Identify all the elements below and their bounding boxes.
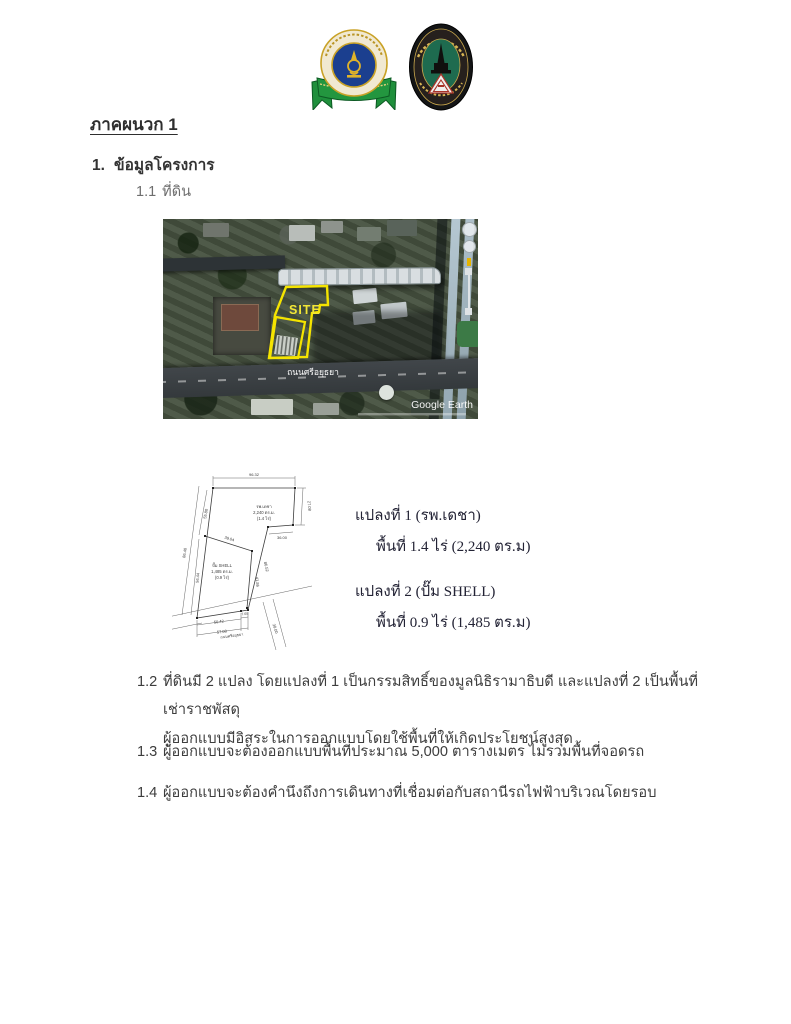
plot2-area-text: พื้นที่ 0.9 ไร่ (1,485 ตร.ม) [355,610,615,634]
satellite-map-figure: SITE ถนนศรีอยุธยา Google Earth [163,219,478,419]
dim-side-road: 38.00 [272,623,280,635]
dim-left-lower: 56.44 [194,572,200,583]
dim-right-h: 36.00 [277,535,288,540]
section-1-label: ข้อมูลโครงการ [114,157,215,174]
dim-divider: 39.04 [224,535,236,543]
plot2-name: ปั๊ม SHELL [212,562,233,568]
header-logos [0,0,791,120]
plot1-name: รพ.เดชา [256,504,272,509]
section-1-heading: 1.ข้อมูลโครงการ [92,152,215,177]
site-label: SITE [289,303,321,317]
clause-1-4-text: ผู้ออกแบบจะต้องคำนึงถึงการเดินทางที่เชื่… [163,779,712,807]
dim-bottom-total: 57.08 [217,628,228,634]
page-title: ภาคผนวก 1 [90,111,178,138]
clause-1-4-number: 1.4 [137,779,163,807]
dim-plot2-right: 41.86 [254,577,260,588]
plot2-area-rai: (0.9 ไร่) [215,574,230,580]
dim-bottom-a: 50.42 [214,618,225,624]
dim-left-upper: 55.80 [202,508,209,519]
section-1-number: 1. [92,157,114,175]
clause-1-3-number: 1.3 [137,738,163,766]
map-road-label: ถนนศรีอยุธยา [287,367,339,378]
dim-bottom-b: 7.65 [241,612,248,617]
section-1-1-number: 1.1 [136,184,156,200]
plot-boundary [197,488,295,618]
plot2-area-sqm: 1,485 ตร.ม. [211,569,233,574]
asa-architects-logo-icon [408,23,474,111]
document-page: ภาคผนวก 1 1.ข้อมูลโครงการ 1.1ที่ดิน [0,0,791,1024]
dim-left-outer: 86.40 [181,547,187,558]
plot1-area-sqm: 2,240 ตร.ม. [253,510,275,515]
section-1-1-label: ที่ดิน [162,184,191,200]
dim-top: 96.32 [249,472,260,477]
dim-plot1-slant: 86.52 [263,561,270,573]
land-survey-diagram: 96.32 27.08 36.00 86.40 55.80 56.44 39.0… [172,466,382,662]
dim-right-v: 27.08 [307,501,313,512]
plot-descriptions: แปลงที่ 1 (รพ.เดชา) พื้นที่ 1.4 ไร่ (2,2… [355,503,615,634]
site-outline-overlay: SITE ถนนศรีอยุธยา Google Earth [163,219,478,419]
mahidol-university-logo-icon [308,26,400,110]
section-1-1-heading: 1.1ที่ดิน [136,180,191,203]
plot1-area-text: พื้นที่ 1.4 ไร่ (2,240 ตร.ม) [355,534,615,558]
google-earth-watermark: Google Earth [411,399,473,411]
clause-1-2-line1: ที่ดินมี 2 แปลง โดยแปลงที่ 1 เป็นกรรมสิท… [163,674,698,718]
clause-1-4: 1.4 ผู้ออกแบบจะต้องคำนึงถึงการเดินทางที่… [137,779,712,807]
clause-1-3: 1.3 ผู้ออกแบบจะต้องออกแบบพื้นที่ประมาณ 5… [137,738,712,766]
copyright-strip [358,413,466,415]
plot1-area-rai: (1.4 ไร่) [257,515,272,521]
plot2-title: แปลงที่ 2 (ปั๊ม SHELL) [355,579,615,603]
clause-1-3-text: ผู้ออกแบบจะต้องออกแบบพื้นที่ประมาณ 5,000… [163,738,712,766]
plot1-title: แปลงที่ 1 (รพ.เดชา) [355,503,615,527]
